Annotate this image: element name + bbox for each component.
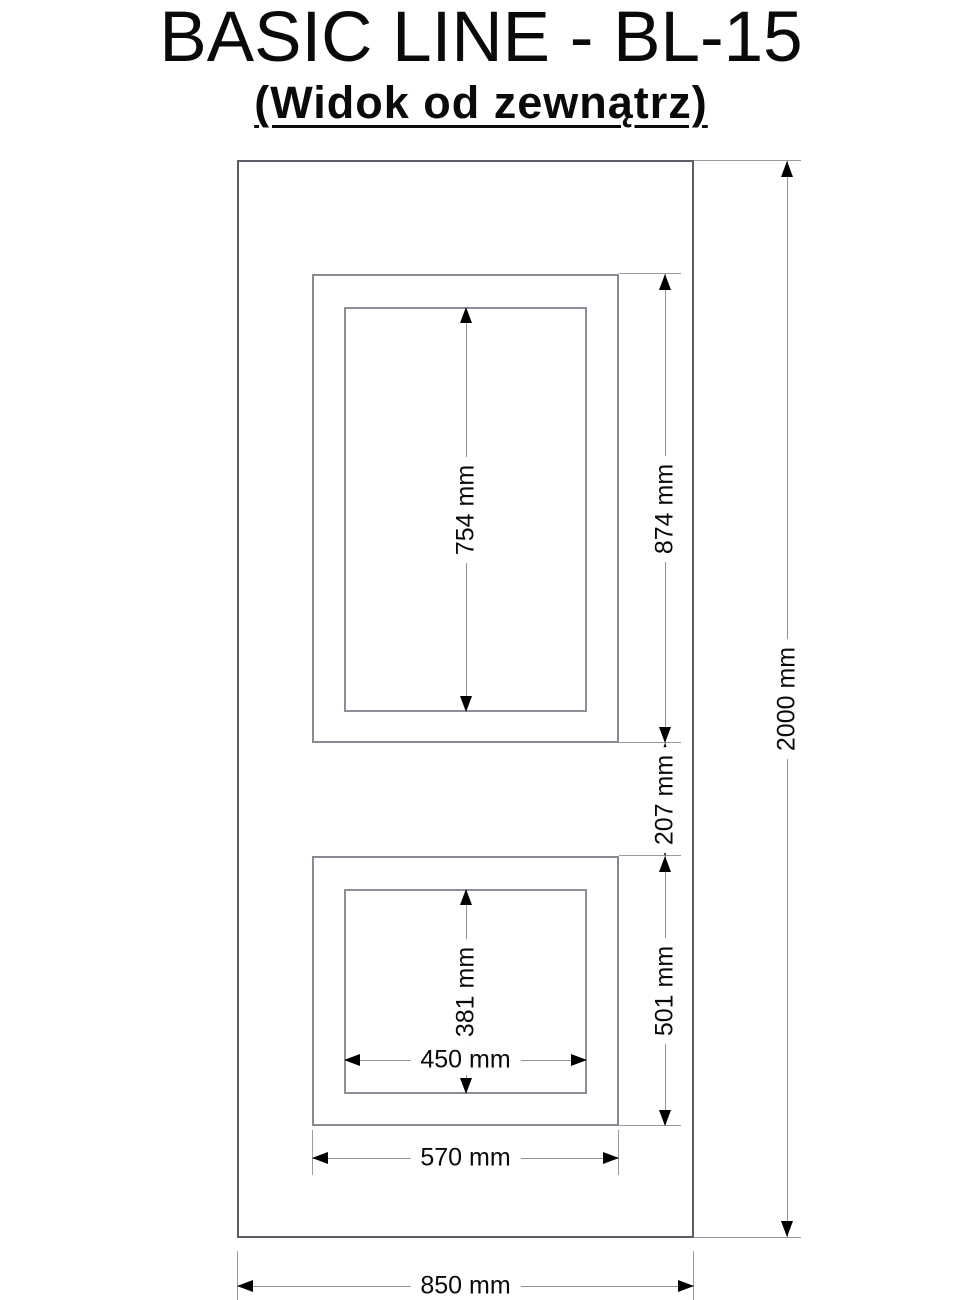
arrow-up-icon — [460, 889, 472, 905]
arrow-right-icon — [603, 1152, 619, 1164]
extension-line — [619, 273, 681, 274]
arrow-right-icon — [678, 1280, 694, 1292]
header: BASIC LINE - BL-15 (Widok od zewnątrz) — [0, 2, 962, 129]
arrow-down-icon — [659, 727, 671, 743]
dimension-label: 754 mm — [451, 456, 481, 562]
arrow-up-icon — [460, 307, 472, 323]
arrow-down-icon — [659, 1110, 671, 1126]
extension-line — [694, 1237, 801, 1238]
arrow-down-icon — [781, 1221, 793, 1237]
arrow-up-icon — [659, 856, 671, 872]
extension-line — [619, 1125, 681, 1126]
arrow-left-icon — [344, 1054, 360, 1066]
dimension-label: 874 mm — [650, 455, 680, 561]
extension-line — [619, 855, 681, 856]
arrow-right-icon — [571, 1054, 587, 1066]
dimension-label: 450 mm — [410, 1045, 520, 1075]
dimension-label: 501 mm — [650, 938, 680, 1044]
arrow-left-icon — [312, 1152, 328, 1164]
extension-line — [619, 742, 681, 743]
arrow-left-icon — [237, 1280, 253, 1292]
dimension-label: 850 mm — [410, 1271, 520, 1300]
drawing-subtitle: (Widok od zewnątrz) — [0, 77, 962, 129]
arrow-down-icon — [460, 1078, 472, 1094]
arrow-up-icon — [659, 274, 671, 290]
arrow-up-icon — [781, 161, 793, 177]
dimension-label: 570 mm — [410, 1143, 520, 1173]
door-technical-drawing: BASIC LINE - BL-15 (Widok od zewnątrz) 7… — [0, 0, 962, 1300]
drawing-title: BASIC LINE - BL-15 — [0, 2, 962, 74]
dimension-label: 207 mm — [650, 746, 680, 852]
extension-line — [237, 1251, 238, 1300]
arrow-down-icon — [460, 696, 472, 712]
dimension-label: 2000 mm — [772, 639, 802, 759]
dimension-label: 381 mm — [451, 938, 481, 1044]
extension-line — [693, 1251, 694, 1300]
